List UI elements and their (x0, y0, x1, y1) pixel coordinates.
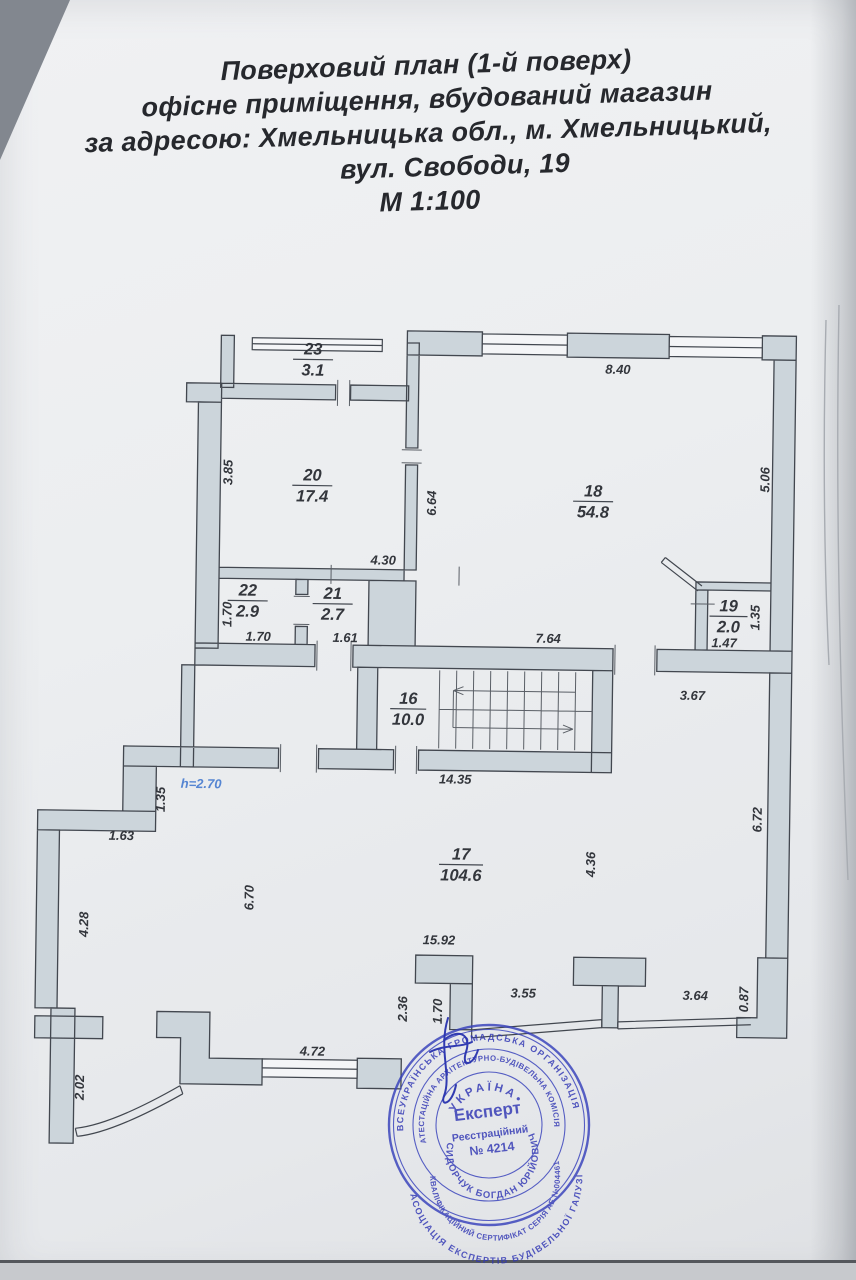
room-23-number: 23 (303, 340, 323, 358)
room-20-area: 17.4 (296, 487, 328, 505)
page-edge-line-1 (824, 320, 829, 665)
dim-14-35: 14.35 (439, 771, 473, 786)
dim-6-72: 6.72 (750, 806, 765, 832)
stair-treads (439, 670, 593, 750)
plan-drawing: 23 3.1 20 17.4 18 54.8 22 2.9 21 2.7 19 … (33, 326, 796, 1153)
room-16-area: 10.0 (392, 711, 425, 729)
dim-1-35-step: 1.35 (153, 786, 168, 812)
room-fraction-lines (224, 358, 751, 868)
dim-1-47: 1.47 (711, 635, 737, 650)
dim-5-06: 5.06 (757, 466, 772, 492)
floor-plan-svg: 23 3.1 20 17.4 18 54.8 22 2.9 21 2.7 19 … (0, 0, 856, 1280)
scanned-photo: Поверховий план (1-й поверх) офісне прим… (0, 0, 856, 1280)
dim-1-70-pier: 1.70 (430, 998, 445, 1024)
room-19-number: 19 (719, 597, 738, 615)
dim-2-36: 2.36 (395, 995, 410, 1022)
dim-3-85: 3.85 (220, 459, 235, 485)
expert-stamp: ВСЕУКРАЇНСЬКА ГРОМАДСЬКА ОРГАНІЗАЦІЯ АСО… (378, 1014, 606, 1278)
dim-1-61: 1.61 (332, 630, 358, 645)
room-22-number: 22 (238, 582, 258, 600)
dim-2-02: 2.02 (72, 1074, 87, 1101)
dim-4-36: 4.36 (583, 851, 598, 878)
window-frames (242, 331, 762, 1084)
room-17-number: 17 (452, 846, 471, 864)
dim-1-35-room19: 1.35 (747, 604, 762, 630)
page-edge-line-2 (838, 305, 848, 880)
dim-1-63: 1.63 (109, 828, 135, 843)
room-19-area: 2.0 (716, 618, 741, 636)
dim-7-64: 7.64 (535, 631, 561, 646)
dim-6-64: 6.64 (424, 490, 439, 516)
room-23-area: 3.1 (301, 361, 324, 379)
room-21-number: 21 (322, 585, 342, 603)
height-note: h=2.70 (181, 776, 223, 792)
dim-3-64: 3.64 (682, 988, 708, 1003)
room-22-area: 2.9 (235, 602, 260, 620)
dim-0-87: 0.87 (736, 986, 751, 1012)
dim-8-40: 8.40 (605, 362, 631, 377)
room-21-area: 2.7 (320, 606, 345, 624)
room-16-number: 16 (399, 690, 418, 708)
room-17-area: 104.6 (440, 866, 482, 885)
stamp-registration-number: № 4214 (469, 1139, 516, 1158)
dim-1-70-left: 1.70 (219, 601, 234, 627)
dim-4-30: 4.30 (370, 552, 397, 567)
dim-6-70: 6.70 (241, 884, 256, 910)
room-18-number: 18 (584, 482, 603, 500)
dim-3-67: 3.67 (680, 688, 706, 703)
room-20-number: 20 (302, 466, 322, 484)
dim-15-92: 15.92 (423, 932, 457, 947)
dim-4-72: 4.72 (299, 1043, 326, 1058)
window-mullions (242, 341, 762, 1075)
dim-1-70-bottom: 1.70 (245, 629, 271, 644)
curved-entrance-wall (75, 1084, 183, 1137)
dim-4-28: 4.28 (76, 911, 91, 938)
dim-3-55: 3.55 (510, 985, 536, 1000)
staircase (439, 670, 593, 750)
room-18-area: 54.8 (577, 503, 610, 521)
